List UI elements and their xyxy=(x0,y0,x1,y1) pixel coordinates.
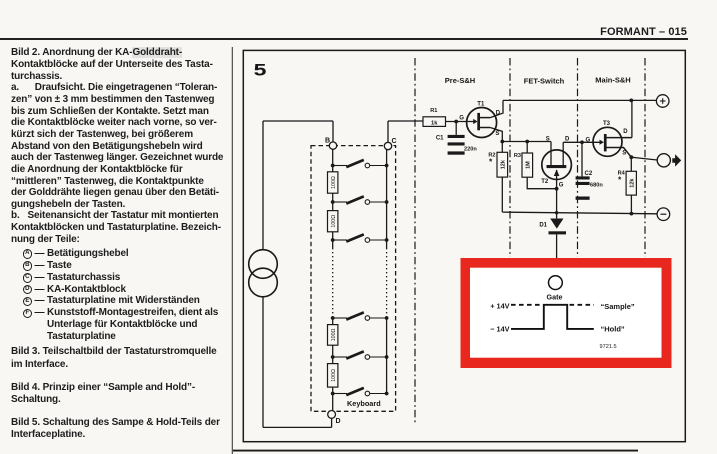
svg-text:T1: T1 xyxy=(477,102,485,108)
svg-text:Keyboard: Keyboard xyxy=(347,399,381,408)
svg-text:100Ω: 100Ω xyxy=(331,215,337,228)
svg-text:100Ω: 100Ω xyxy=(331,369,337,382)
svg-text:100Ω: 100Ω xyxy=(331,328,337,341)
svg-text:R3: R3 xyxy=(514,153,521,159)
svg-text:FET-Switch: FET-Switch xyxy=(524,77,565,86)
svg-text:D: D xyxy=(496,110,501,116)
svg-text:D: D xyxy=(336,418,341,425)
svg-text:9721.5: 9721.5 xyxy=(600,344,617,350)
svg-text:“Sample”: “Sample” xyxy=(601,302,635,311)
svg-text:“Hold”: “Hold” xyxy=(601,325,625,334)
svg-text:D: D xyxy=(623,129,628,135)
svg-text:B: B xyxy=(325,138,330,145)
svg-text:T3: T3 xyxy=(603,121,611,127)
svg-text:S: S xyxy=(546,137,550,143)
svg-text:G: G xyxy=(586,138,591,144)
svg-text:T2: T2 xyxy=(541,179,549,185)
svg-text:G: G xyxy=(459,115,464,121)
svg-text:S: S xyxy=(495,131,499,137)
svg-text:220n: 220n xyxy=(464,147,477,153)
svg-text:680n: 680n xyxy=(590,182,603,188)
svg-text:C: C xyxy=(392,138,397,145)
svg-text:100Ω: 100Ω xyxy=(331,176,337,189)
svg-text:12k: 12k xyxy=(629,178,635,188)
svg-text:C2: C2 xyxy=(585,171,593,177)
svg-text:R1: R1 xyxy=(430,108,437,114)
svg-text:12k: 12k xyxy=(500,159,506,169)
svg-text:1M: 1M xyxy=(525,161,531,169)
svg-text:C1: C1 xyxy=(436,136,444,142)
svg-text:5: 5 xyxy=(254,62,267,80)
svg-text:S: S xyxy=(622,151,626,157)
svg-text:D1: D1 xyxy=(539,223,547,229)
svg-text:Pre-S&H: Pre-S&H xyxy=(445,76,475,85)
svg-text:G: G xyxy=(559,183,564,189)
svg-text:− 14V: − 14V xyxy=(490,325,509,334)
svg-text:1k: 1k xyxy=(431,120,438,126)
svg-text:Main-S&H: Main-S&H xyxy=(595,76,630,85)
svg-text:D: D xyxy=(565,137,570,143)
svg-text:Gate: Gate xyxy=(547,293,563,302)
svg-text:+ 14V: + 14V xyxy=(490,302,509,311)
